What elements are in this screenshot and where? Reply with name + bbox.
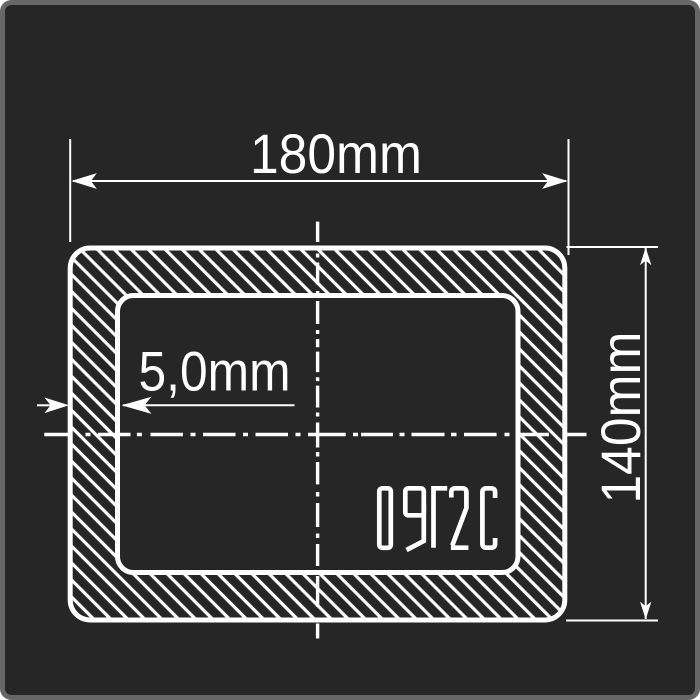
svg-text:140mm: 140mm (590, 332, 652, 504)
svg-text:180mm: 180mm (250, 123, 422, 185)
svg-text:5,0mm: 5,0mm (139, 341, 291, 403)
